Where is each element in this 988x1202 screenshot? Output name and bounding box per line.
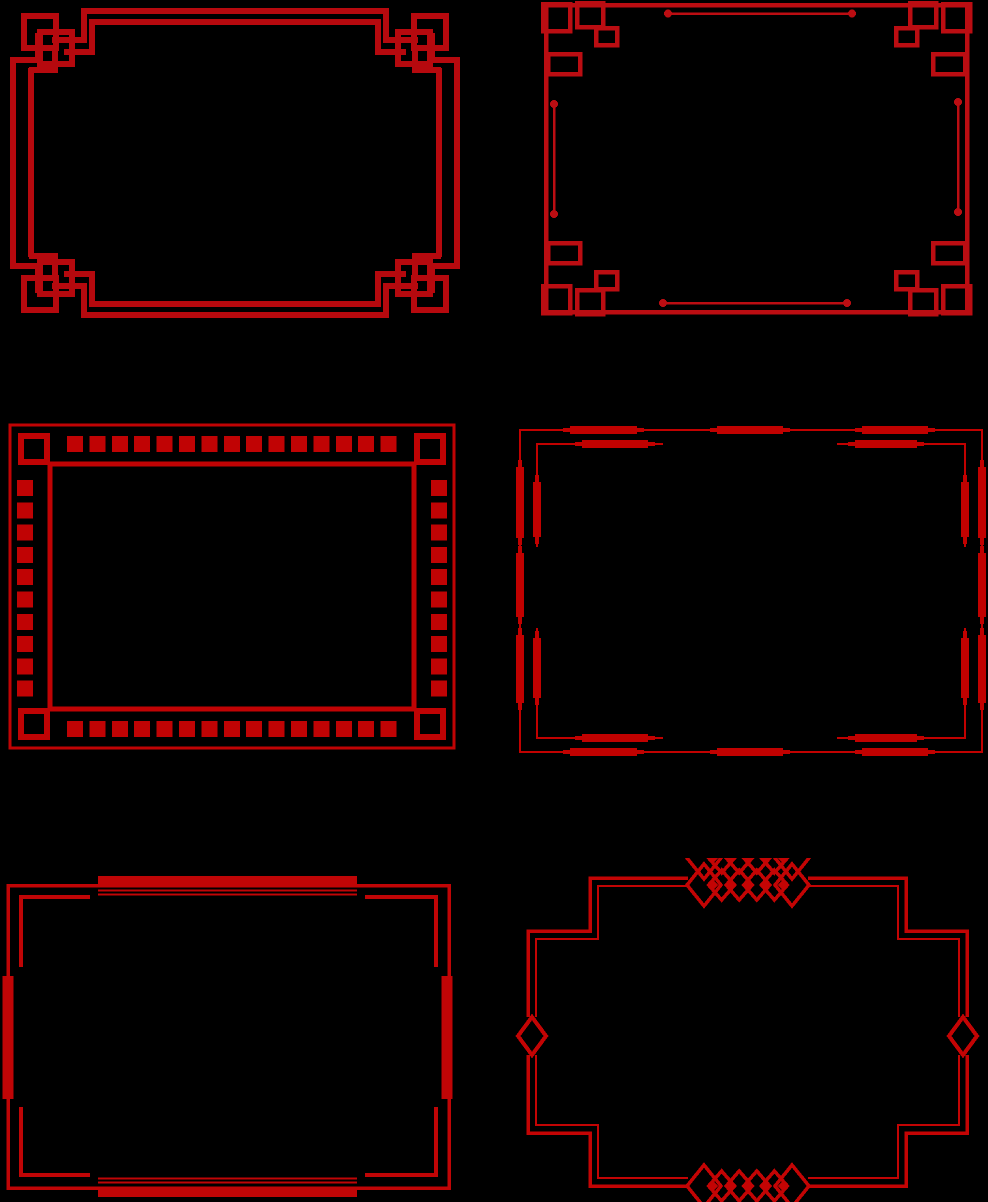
frame-1-graphic [0, 0, 470, 326]
frame-6-stepped-diamond-border [505, 858, 983, 1202]
frame-5-mid-bar-bracket-border [0, 860, 455, 1202]
f3-inner-rectangle [50, 464, 414, 709]
f2-main-rectangle [546, 5, 967, 312]
frame-2-square-cluster-border [515, 0, 988, 330]
f2-accent-dots [550, 10, 962, 308]
frame-5-graphic [0, 860, 455, 1202]
f1-corner-knot [10, 8, 92, 70]
black-background-canvas [0, 0, 988, 1202]
f3-corner-squares [21, 436, 443, 737]
frame-2-graphic [515, 0, 988, 330]
f5-band-lines [98, 891, 357, 1183]
f4-inner-bracket-lines [537, 444, 965, 738]
f6-side-diamonds [518, 1017, 977, 1055]
f2-corner-square-cluster [543, 3, 617, 74]
f6-inner-stepped-line [536, 886, 959, 1178]
f4-outer-rectangle [520, 430, 982, 752]
frame-3-filled-square-band-border [2, 418, 462, 755]
frame-1-interlocked-knot-border [0, 0, 470, 326]
frame-3-graphic [2, 418, 462, 755]
f6-outer-stepped-line [528, 878, 967, 1186]
f5-corner-brackets [21, 897, 436, 1175]
f2-accent-lines [554, 14, 958, 304]
frame-4-graphic [515, 420, 988, 760]
frame-4-spindle-bar-border [515, 420, 988, 760]
f5-mid-edge-bars [3, 876, 453, 1197]
f3-filled-square-bands [25, 444, 439, 729]
frame-6-graphic [505, 858, 983, 1202]
f4-spindle-bars [520, 430, 982, 752]
f5-outer-rectangle [8, 886, 449, 1189]
f6-diamond-chain [687, 858, 809, 879]
f3-outer-rectangle [10, 425, 454, 748]
